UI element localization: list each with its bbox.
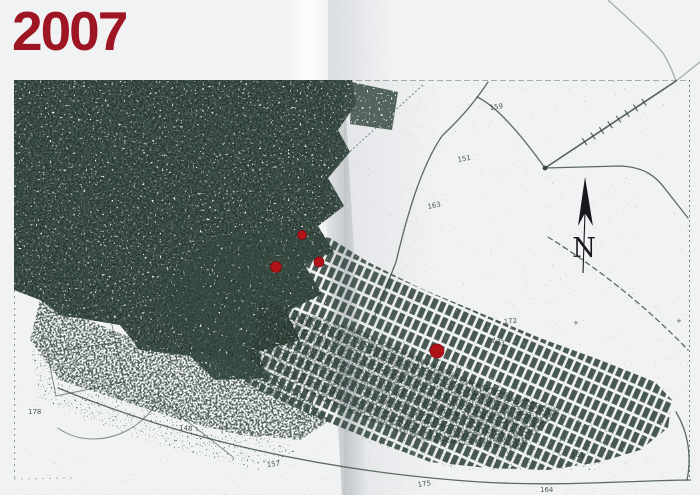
paper-grain [0, 0, 700, 495]
scanned-map-page: 15915116317217317516416115714817884++ N … [0, 0, 700, 495]
map-scan: 15915116317217317516416115714817884++ N [0, 0, 700, 495]
year-label: 2007 [12, 4, 126, 59]
